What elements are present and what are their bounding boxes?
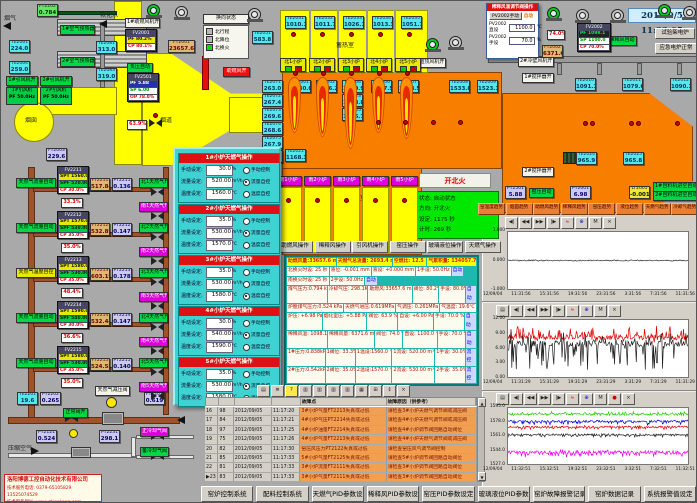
field-input[interactable]: 1590.0 [206, 342, 233, 353]
popup-section-title: 4#小炉天燃气操作 [179, 307, 279, 316]
mode-radio[interactable] [243, 293, 250, 300]
label-tag-22: 2#自料机进空自动 [653, 191, 697, 201]
instrument-value: 517.84 [91, 184, 109, 190]
op-button-1[interactable]: 助燃风操作 [277, 241, 313, 253]
alarm-row-19[interactable]: 19752012/09/0511:17:264#小炉气量FT2213失真或过低请… [205, 435, 477, 444]
alarm-toolbar-icon-11[interactable]: × [397, 385, 410, 397]
alarm-row-16[interactable]: 16982012/09/0511:17:203#小炉气量FT2213失真或过低请… [205, 407, 477, 416]
nav-button-6[interactable]: 玻璃液位PID参数设定 [478, 486, 530, 502]
mode-radio-label: 流量自控 [251, 331, 270, 338]
mode-badge: 自动 [452, 267, 464, 275]
op-button-5[interactable]: 玻璃液位操作 [427, 241, 463, 253]
trend-button-5[interactable]: 窑压趋势 [588, 203, 615, 215]
label-tag-11: 烟囱 [24, 117, 38, 126]
field-input[interactable]: 30.0 [206, 318, 233, 329]
instrument-TE2033: TE20331026.1 [343, 16, 364, 29]
chart-toolbar-icon-3[interactable]: ◀◀ [524, 393, 537, 405]
instrument-TE2031: TE20311010.1 [285, 16, 306, 29]
fan-box-2: 2#引风机PF 50.0Hz [40, 87, 72, 105]
instrument-value: 965.8 [624, 158, 643, 164]
instrument-value: 1523.1 [478, 86, 497, 92]
chart-toolbar-icon-8[interactable]: × [603, 217, 616, 229]
chart-toolbar-icon-7[interactable]: M [589, 217, 602, 229]
sensor-dot [407, 32, 412, 37]
data-cell: 北换火时设: 25 秒 [287, 267, 329, 275]
nav-button-3[interactable]: 天燃气PID参数设定 [312, 486, 364, 502]
alarm-toolbar-icon-7[interactable]: ▥ [341, 385, 354, 397]
controller-row: OP 78.0% [129, 95, 157, 101]
controller-spf: SPF 530.00 [59, 361, 87, 367]
pv2002-mv-unit: % [537, 38, 541, 43]
pressure-gauge-icon [69, 429, 78, 438]
op-button-3[interactable]: 引风机操作 [352, 241, 388, 253]
alarm-cause: 请检查4#小炉调节阀回路自动阀位 [387, 426, 477, 434]
controller-spf: SPF 540.00 [59, 316, 87, 322]
mode-badge: 流控 [466, 349, 476, 366]
alarm-row-22[interactable]: 22812012/09/0511:17:333#小炉流量FT2111失真或过低请… [205, 463, 477, 472]
trend-button-7[interactable]: 天燃气趋势 [644, 203, 671, 215]
switch-item-label: 北行程 [215, 28, 229, 35]
instrument-value: 1533.8 [450, 86, 469, 92]
popup-section-title: 2#小炉天燃气操作 [179, 205, 279, 214]
switch-item: 北降位 [206, 36, 246, 43]
chart-xtick: 3:32:51 [624, 467, 641, 475]
chart-ytick: 1.000 [480, 228, 505, 234]
op-button-6[interactable]: 天燃气操作 [465, 241, 501, 253]
pump-icon [174, 5, 190, 20]
chart-xtick: 11:31:56 [676, 292, 695, 300]
controller-cp: CP 35.0% [59, 233, 87, 239]
alarm-point: 5#小炉气量FT2125失真或过低 [300, 454, 386, 462]
controller-spt: SPT 1580.0 [59, 354, 87, 360]
chart-toolbar-icon-5[interactable]: |▶ [552, 393, 565, 405]
instrument-value: 1090.1 [671, 84, 690, 90]
north-gas-open-1: 北1天然气开 [139, 178, 168, 188]
gas-valve-north-icon[interactable] [151, 323, 164, 331]
gas-valve-south-icon[interactable] [151, 392, 164, 400]
alarm-toolbar-icon-9[interactable]: ⊞ [369, 385, 382, 397]
mode-radio[interactable] [243, 230, 250, 237]
mode-radio-label: 温度自控 [251, 241, 270, 248]
instrument-TE2051: TE2051583.8 [252, 31, 273, 44]
train-mode-4: 天然气流量自动 [16, 313, 56, 323]
alarm-header-cell [235, 398, 273, 405]
controller-FV2212: FV2212SPT 1570.0SPF 530.00CP 35.0% [57, 211, 89, 239]
chart-toolbar-icon-6[interactable]: ≈ [566, 305, 579, 317]
nav-button-1[interactable]: 窑炉控制系统 [201, 486, 253, 502]
pump-running-icon [546, 6, 562, 21]
gas-valve-south-icon[interactable] [151, 212, 164, 220]
south-port-2: 南2小炉 [304, 176, 331, 186]
chart-toolbar-icon-10[interactable]: × [622, 393, 635, 405]
field-input[interactable]: 530.00 [206, 279, 233, 290]
alarm-point: 4#小炉油量FT2214失真或过低 [300, 426, 386, 434]
controller-FV2002: FV2002PF 1098.1SP 1100.0CP 70.0% [577, 23, 611, 52]
chart-toolbar-icon-3[interactable]: ▶▶ [533, 217, 546, 229]
alarm-date: 2012/09/05 [234, 463, 272, 471]
gas-valve-south-icon[interactable] [151, 347, 164, 355]
trend-button-8[interactable]: 冷却气趋势 [671, 203, 697, 215]
mode-radio[interactable] [243, 269, 250, 276]
sensor-dot [349, 32, 354, 37]
field-unit: ℃ [232, 191, 237, 196]
sensor-dot [376, 120, 381, 125]
instrument-value: 19.6 [18, 398, 37, 404]
reversal-status-panel: 北行程北降位北换火 [203, 25, 249, 59]
chart-ytick: 1595.0 [480, 404, 505, 410]
pipe-drop [557, 63, 562, 75]
chart-toolbar-icon-8[interactable]: M [594, 305, 607, 317]
instrument-PT2001: PT20016.98 [570, 186, 591, 199]
instrument-value: 5.88 [506, 192, 525, 198]
controller-spf: SPF 530.00 [59, 271, 87, 277]
nav-button-5[interactable]: 窑压PID参数设定 [422, 486, 474, 502]
alarm-row-number: ▶23 [205, 473, 218, 481]
controller-row: SP 6.00 [129, 88, 157, 94]
instrument-value: 1010.1 [286, 22, 305, 28]
chart-toolbar-icon-9[interactable]: × [608, 305, 621, 317]
field-unit: % [232, 320, 236, 325]
field-input[interactable]: 1580.0 [206, 291, 233, 302]
instrument-TE2008: TE20081533.8 [449, 80, 470, 93]
chart-xticks-1: 12/09/0411:31:5615:31:5619:31:5623:31:56… [483, 292, 695, 300]
alarm-header-cell [206, 398, 219, 405]
pump-hub [579, 12, 586, 19]
chart-xtick: 19:31:56 [568, 292, 587, 300]
label-tag-3: 2#空气预热器 [60, 57, 95, 67]
chart-toolbar-icon-1[interactable]: ◀| [505, 217, 518, 229]
pump-hub [550, 10, 557, 17]
data-cell: 天燃气进压:0.619MPa [344, 304, 395, 312]
alarm-row-23[interactable]: ▶23832012/09/0511:17:333#小炉气量FT2111失真或过低… [205, 473, 477, 482]
alarm-row-18[interactable]: 18972012/09/0511:17:254#小炉油量FT2214失真或过低请… [205, 426, 477, 435]
chart-ytick: 3.00 [480, 360, 505, 366]
sensor-dot [349, 71, 354, 76]
data-cell: 1温设:1560.0 ℃ [356, 349, 391, 366]
reversal-panel-title: 换向状态 [203, 14, 249, 24]
instrument-PT2215: PT22150.140 [112, 358, 132, 371]
alarm-toolbar-icon-6[interactable]: ▥ [327, 385, 340, 397]
alarm-row-17[interactable]: 17842012/09/0511:17:214#小炉气压PT2214失真或过低请… [205, 416, 477, 425]
test-standby-furnace-button[interactable]: 试验柴电炉 [655, 28, 695, 39]
chart-xticks-2: 12/09/0411:31:2915:31:2919:31:2923:31:29… [483, 380, 695, 388]
gas-valve-north-icon[interactable] [151, 233, 164, 241]
chart-toolbar-icon-3[interactable]: ◀◀ [524, 305, 537, 317]
alarm-cause: 请检查5#小炉调节阀回路自动阀位 [387, 454, 477, 462]
south-port-5: 南5小炉 [391, 176, 418, 186]
company-info: 洛阳博德工控自动化技术有限公司 技术服务电话: 0379-65105829 13… [4, 474, 102, 502]
north-gas-open-3: 北3天然气开 [139, 268, 168, 278]
chart-xtick: 15:31:29 [540, 380, 559, 388]
label-tag-16: 74.0% [547, 30, 565, 40]
sensor-dot [590, 121, 595, 126]
alarm-row-21[interactable]: 21852012/09/0511:17:335#小炉气量FT2125失真或过低请… [205, 454, 477, 463]
chart-toolbar-icon-4[interactable]: ▶▶ [538, 305, 551, 317]
chart-toolbar-icon-4[interactable]: ▶▶ [538, 393, 551, 405]
mode-radio[interactable] [243, 320, 250, 327]
trend-button-4[interactable]: 稀释风趋势 [561, 203, 588, 215]
field-unit: % [232, 167, 236, 172]
instrument-value: 23657.6 [169, 46, 194, 52]
pv2002-mv-input[interactable]: 70.0 [509, 37, 535, 45]
pump-running-icon [146, 3, 162, 18]
mode-radio[interactable] [243, 179, 250, 186]
field-input[interactable]: 35.0 [206, 216, 233, 227]
alarm-cause: 请检查窑压风气调节阀控制 [387, 445, 477, 453]
instrument-value: -0.001 [630, 192, 649, 198]
field-input[interactable]: 35.0 [206, 267, 233, 278]
alarm-row-number: 20 [205, 445, 218, 453]
chart-xtick: 7:31:29 [650, 380, 667, 388]
nav-button-2[interactable]: 配料控制系统 [256, 486, 308, 502]
field-label: 温度设定: [181, 241, 203, 248]
alarm-toolbar-icon-1[interactable]: ▤ [257, 385, 270, 397]
chart-ytick: 1578.0 [480, 419, 505, 425]
nav-button-9[interactable]: 系统报警值设定 [644, 486, 696, 502]
alarm-toolbar-icon-4[interactable]: ▥ [299, 385, 312, 397]
instrument-value: 267.4 [263, 100, 282, 106]
controller-spt: SPT 1580.0 [59, 264, 87, 270]
combustion-air-riser [202, 56, 209, 90]
chart-toolbar-icon-9[interactable]: ● [608, 393, 621, 405]
alarm-time: 11:17:33 [272, 454, 301, 462]
sensor-dot [675, 121, 680, 126]
trend-button-2[interactable]: 烟囱趋势 [506, 203, 533, 215]
chart-toolbar-icon-2[interactable]: ◀| [510, 305, 523, 317]
alarm-header-cell: 故障点 [301, 398, 387, 405]
data-cell: 冷却气压: 298.1KPa [328, 286, 368, 303]
switch-item: 北行程 [206, 28, 246, 35]
chart-toolbar-icon-5[interactable]: ≈ [561, 217, 574, 229]
nav-button-8[interactable]: 窑炉数据记录 [588, 486, 640, 502]
field-input[interactable]: 530.00 [206, 228, 233, 239]
alarm-code: 83 [218, 473, 233, 481]
pump-hub [661, 7, 668, 14]
sensor-dot [636, 121, 641, 126]
pump-base [247, 19, 263, 22]
field-input[interactable]: 530.00 [206, 381, 233, 392]
data-cell: 2流设: 530.00 m³/h [392, 367, 434, 384]
series-3#小炉温度 [508, 425, 688, 429]
chart-xtick: 11:31:29 [676, 380, 695, 388]
trend-button-3[interactable]: 助燃风趋势 [533, 203, 560, 215]
field-input[interactable]: 35.0 [206, 369, 233, 380]
field-label: 温度设定: [181, 190, 203, 197]
instrument-value: 0.178 [113, 274, 131, 280]
mode-radio-label: 手动控制 [251, 217, 270, 224]
instrument-TE2035: TE20351051.7 [401, 16, 422, 29]
instrument-PT2212: PT22120.147 [112, 223, 132, 236]
sensor-dot [293, 71, 298, 76]
op-button-4[interactable]: 窑压操作 [390, 241, 426, 253]
mode-radio[interactable] [243, 167, 250, 174]
pipe-drop [677, 63, 682, 75]
mode-radio[interactable] [243, 383, 250, 390]
trend-button-6[interactable]: 液位趋势 [616, 203, 643, 215]
mode-radio[interactable] [243, 218, 250, 225]
status-period: 设定: 1175 秒 [419, 215, 495, 225]
controller-row: CP 70.0% [579, 45, 609, 51]
pv2002-sp-input[interactable]: 1100.0 [509, 24, 535, 32]
pump-base [575, 20, 591, 23]
chart-toolbar-icon-2[interactable]: ◀| [510, 393, 523, 405]
alarm-toolbar-icon-10[interactable]: ↕ [383, 385, 396, 397]
sensor-dot [373, 198, 378, 203]
field-input[interactable]: 520.00 [206, 177, 233, 188]
data-header-cell: 助燃风量:33657.6 m³/h [287, 258, 336, 266]
field-unit: ℃ [232, 242, 237, 247]
alarm-row-number: 18 [205, 426, 218, 434]
instrument-TE2071: TE2071263.0 [262, 80, 283, 93]
north-port-3: 北3小炉 [338, 58, 364, 72]
mode-radio[interactable] [243, 332, 250, 339]
indicator-red [381, 66, 388, 72]
field-unit: m³/h [232, 332, 243, 337]
sensor-dot [402, 198, 407, 203]
chart-xtick: 23:32:51 [596, 467, 615, 475]
pump-hub [686, 9, 693, 16]
instrument-value: 532.89 [91, 229, 109, 235]
nav-button-4[interactable]: 稀释风PID参数设定 [367, 486, 419, 502]
train-mode-3: 天然气温度自控 [16, 268, 56, 278]
instrument-value: 0.784 [38, 10, 57, 16]
instrument-TE2064: TE2064259.0 [9, 61, 30, 74]
data-cell: 煤气压力:0.794 kPa [287, 286, 327, 303]
emergency-furnace-button[interactable]: 应急电炉正常 [655, 43, 697, 54]
alarm-toolbar-icon-8[interactable]: ▦ [355, 385, 368, 397]
chart-toolbar-icon-2[interactable]: ◀◀ [519, 217, 532, 229]
controller-FV2001: FV2001PF 80.2%CP 80.1% [125, 29, 157, 52]
chart-toolbar-icon-4[interactable]: |▶ [547, 217, 560, 229]
mode-radio[interactable] [243, 242, 250, 249]
sensor-dot [321, 71, 326, 76]
field-input[interactable]: 540.00 [206, 330, 233, 341]
controller-spt: SPT 1570.0 [59, 219, 87, 225]
chart-ytick: 12.00 [480, 316, 505, 322]
pv2002-manual-button[interactable]: PV2002手动 [489, 12, 522, 20]
nav-button-7[interactable]: 窑炉故障报警记录 [533, 486, 585, 502]
north-gas-open-4: 北4天然气开 [139, 313, 168, 323]
divider [482, 390, 697, 392]
fire-north-button[interactable]: 开北火 [419, 173, 491, 188]
instrument-PT2501: PT25015.88 [505, 186, 526, 199]
chart-toolbar-icon-7[interactable]: ⊕ [580, 393, 593, 405]
controller-title: FV2214 [59, 303, 87, 308]
process-data-panel: 助燃风量:33657.6 m³/h天燃气总流量: 2693.4 m³/h空燃比:… [284, 255, 479, 386]
gas-valve-south-icon[interactable] [151, 302, 164, 310]
valve-position-1: 33.3% [61, 198, 83, 208]
gas-valve-south-icon[interactable] [151, 257, 164, 265]
alarm-point: 窑压风压力PT2122失真或过低 [300, 445, 386, 453]
instrument-value: 1091.1 [576, 84, 595, 90]
instrument-TE2025: TE2025965.8 [623, 152, 644, 165]
indicator-red [410, 66, 417, 72]
alarm-toolbar-icon-5[interactable]: ▥ [313, 385, 326, 397]
alarm-code: 84 [218, 416, 233, 424]
gas-valve-north-icon[interactable] [151, 188, 164, 196]
field-unit: % [232, 269, 236, 274]
mode-badge: 自动 [466, 331, 476, 348]
alarm-row-20[interactable]: 20822012/09/0511:17:30窑压风压力PT2122失真或过低请检… [205, 445, 477, 454]
op-button-2[interactable]: 稀释风操作 [315, 241, 351, 253]
company-web: 技术服务网址: www.chinakong.com [7, 499, 99, 502]
field-label: 手动设定: [181, 217, 203, 224]
alarm-time: 11:17:21 [272, 416, 301, 424]
chart-toolbar-icon-6[interactable]: ≈ [566, 393, 579, 405]
field-unit: % [232, 218, 236, 223]
sensor-dot [344, 198, 349, 203]
chart-toolbar-icon-8[interactable]: M [594, 393, 607, 405]
chart-plot-2 [507, 319, 689, 378]
trend-button-1[interactable]: 窑温度趋势 [478, 203, 505, 215]
mode-radio-label: 手动控制 [251, 166, 270, 173]
south-gas-open-3: 南3天然气开 [139, 292, 168, 302]
mode-radio[interactable] [243, 371, 250, 378]
alarm-cause: 请检查3#小炉调节阀回路自动阀位 [387, 473, 477, 481]
instrument-TE2073: TE2073269.6 [262, 108, 283, 121]
gas-flow-arrow-icon [177, 416, 185, 424]
field-input[interactable]: 30.0 [206, 165, 233, 176]
instrument-FT2202: FT22020.784 [37, 4, 58, 17]
data-panel-row-5: 炉压: +6.98 Pa烟化室压: +5.88 Pa阀位: 63.9 %自设: … [287, 313, 476, 330]
controller-FV2211: FV2211SPT 1560.0SPF 520.00CP 30.0% [57, 166, 89, 194]
instrument-FT2215: FT2215524.58 [90, 358, 110, 371]
gas-valve-north-icon[interactable] [151, 368, 164, 376]
data-cell: 炉压: +6.98 Pa [287, 313, 322, 330]
instrument-TE2032: TE20321011.7 [314, 16, 335, 29]
data-cell: 炉膛煤气压力:0.524 kPa [287, 304, 343, 312]
fan-status-1: 1#引风机开 [6, 76, 38, 86]
chart-toolbar-icon-5[interactable]: |▶ [552, 305, 565, 317]
gas-valve-north-icon[interactable] [151, 278, 164, 286]
alarm-row-number: 22 [205, 463, 218, 471]
north-port-5: 北5小炉 [395, 58, 421, 72]
pipe-drop [637, 63, 642, 75]
controller-title: FV2001 [127, 31, 155, 36]
label-tag-7: 负压自动 [127, 63, 153, 73]
instrument-value: 313.0 [97, 47, 116, 53]
field-input[interactable]: 1570.0 [206, 240, 233, 251]
cooling-air-riser [131, 437, 136, 457]
field-input[interactable]: 1560.0 [206, 189, 233, 200]
mode-radio[interactable] [243, 281, 250, 288]
mode-radio[interactable] [243, 344, 250, 351]
data-cell: 手设: 70.0 % [438, 331, 465, 348]
chart-plot-1 [507, 231, 689, 290]
chart-xtick: 3:31:56 [624, 292, 641, 300]
controller-row: PF 1098.1 [579, 31, 609, 37]
company-phone: 技术服务电话: 0379-65105829 13525074529 [7, 485, 99, 499]
alarm-toolbar-icon-2[interactable]: ≣ [271, 385, 284, 397]
controller-spf: SPF 530.00 [59, 226, 87, 232]
popup-section-3: 3#小炉天燃气操作手动设定:35.0%手动控制流量设定:530.00m³/h流量… [178, 255, 280, 305]
pump-base [448, 47, 464, 50]
sensor-dot [458, 120, 463, 125]
sensor-dot [583, 121, 588, 126]
alarm-code: 85 [218, 454, 233, 462]
sensor-dot [431, 120, 436, 125]
field-label: 流量设定: [181, 229, 203, 236]
alarm-toolbar-icon-3[interactable]: ? [285, 385, 298, 397]
pump-hub [178, 9, 185, 16]
alarm-toolbar: ▤≣?▥▥▥▥▦⊞↕× [257, 385, 477, 396]
data-panel-row-6: 稀释风温: 1098.1℃稀释风量: 6371.6 m³/h阀位: 74.0 %… [287, 331, 476, 348]
mode-radio[interactable] [243, 191, 250, 198]
chart-toolbar-icon-6[interactable]: ⊕ [575, 217, 588, 229]
pv2002-auto-label: 自动 [524, 13, 533, 19]
chart-toolbar-icon-7[interactable]: ⊕ [580, 305, 593, 317]
instrument-value: 0.147 [113, 229, 131, 235]
